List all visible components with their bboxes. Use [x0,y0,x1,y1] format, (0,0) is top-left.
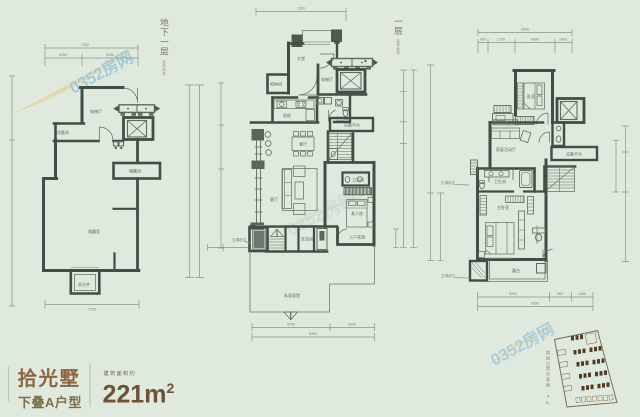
svg-text:7150: 7150 [88,308,96,312]
svg-text:一层: 一层 [394,17,403,37]
svg-text:卧室: 卧室 [527,93,535,99]
svg-text:8350: 8350 [309,332,317,336]
svg-text:下叠A户型: 下叠A户型 [18,395,82,410]
svg-text:楼座位置示意图: 楼座位置示意图 [546,349,550,388]
svg-text:4150: 4150 [59,53,67,57]
svg-text:221m2: 221m2 [103,380,175,409]
svg-text:设备平台: 设备平台 [566,151,582,157]
svg-text:N: N [546,401,549,405]
svg-text:大堂: 大堂 [297,55,305,61]
svg-text:拾光墅: 拾光墅 [18,367,81,390]
svg-text:家庭活动厅: 家庭活动厅 [496,146,516,152]
svg-text:卫生间: 卫生间 [352,177,364,183]
svg-text:2700: 2700 [497,38,505,42]
svg-text:9050: 9050 [521,28,529,32]
svg-text:客厅: 客厅 [270,196,278,202]
svg-text:3300: 3300 [297,7,305,11]
svg-text:储藏室: 储藏室 [88,228,100,234]
svg-text:洗衣间: 洗衣间 [301,236,313,242]
svg-text:5300: 5300 [509,292,517,296]
svg-text:空调机位: 空调机位 [232,237,247,242]
svg-text:采光井: 采光井 [78,281,90,287]
svg-text:餐厅: 餐厅 [299,141,307,147]
svg-text:1450: 1450 [559,38,567,42]
svg-text:卫生间: 卫生间 [494,178,506,184]
svg-text:电梯厅: 电梯厅 [321,76,333,82]
svg-text:入户花园: 入户花园 [349,234,365,240]
svg-text:地下一层: 地下一层 [160,17,169,57]
svg-text:设备间: 设备间 [57,129,69,135]
svg-text:空调机位: 空调机位 [441,180,456,185]
svg-text:7200: 7200 [81,43,89,47]
svg-text:设备平台: 设备平台 [344,122,360,128]
svg-text:↗: ↗ [546,394,550,399]
svg-text:主卧室: 主卧室 [497,204,509,210]
svg-text:收纳间: 收纳间 [270,81,282,87]
svg-text:建筑面积约: 建筑面积约 [104,369,136,377]
svg-text:9050: 9050 [531,302,539,306]
svg-text:860: 860 [557,292,563,296]
svg-text:厨房: 厨房 [283,112,291,118]
svg-text:900: 900 [480,38,486,42]
svg-text:5750: 5750 [287,323,295,327]
svg-text:储藏间: 储藏间 [129,168,141,174]
svg-text:露台: 露台 [512,267,520,273]
svg-text:3050: 3050 [106,53,114,57]
svg-text:2600: 2600 [348,323,356,327]
svg-text:4000: 4000 [531,38,539,42]
svg-text:老人房: 老人房 [351,210,363,216]
svg-text:电梯厅: 电梯厅 [90,108,102,114]
svg-text:空调机位: 空调机位 [441,273,456,278]
svg-text:私家庭院: 私家庭院 [284,292,300,298]
svg-text:1060: 1060 [578,292,586,296]
